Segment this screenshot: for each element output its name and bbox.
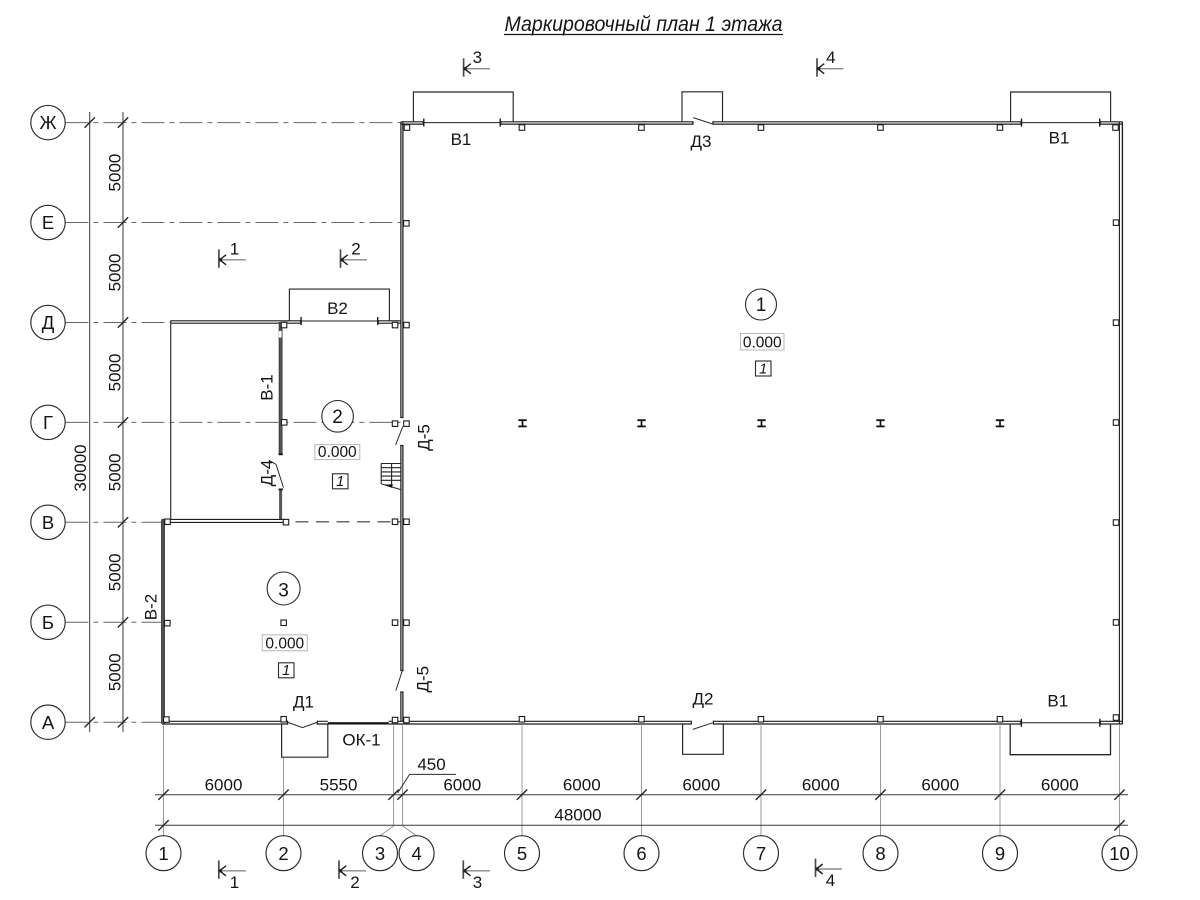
svg-text:48000: 48000 xyxy=(554,805,601,824)
svg-text:Д-5: Д-5 xyxy=(415,424,434,451)
svg-text:В-1: В-1 xyxy=(258,374,277,400)
svg-text:450: 450 xyxy=(417,755,445,774)
svg-text:5000: 5000 xyxy=(105,354,124,392)
svg-text:6000: 6000 xyxy=(921,776,959,795)
svg-text:0.000: 0.000 xyxy=(743,335,782,352)
svg-text:6000: 6000 xyxy=(205,776,243,795)
svg-text:4: 4 xyxy=(411,843,421,864)
svg-text:5000: 5000 xyxy=(105,553,124,591)
svg-text:В1: В1 xyxy=(1049,129,1070,148)
svg-text:3: 3 xyxy=(473,48,482,67)
svg-text:1: 1 xyxy=(336,474,344,490)
svg-text:В1: В1 xyxy=(1047,692,1068,711)
svg-text:В2: В2 xyxy=(327,299,348,318)
svg-text:1: 1 xyxy=(282,663,290,679)
svg-text:6000: 6000 xyxy=(802,776,840,795)
svg-text:1: 1 xyxy=(230,240,239,259)
svg-text:9: 9 xyxy=(995,843,1005,864)
svg-text:5000: 5000 xyxy=(105,254,124,292)
svg-text:6000: 6000 xyxy=(1041,776,1079,795)
svg-text:Д-5: Д-5 xyxy=(414,666,433,693)
svg-text:6000: 6000 xyxy=(682,776,720,795)
svg-text:5000: 5000 xyxy=(105,453,124,491)
svg-text:Д3: Д3 xyxy=(691,132,712,151)
svg-text:0.000: 0.000 xyxy=(265,635,304,652)
svg-text:2: 2 xyxy=(332,407,343,428)
svg-text:4: 4 xyxy=(826,871,835,890)
svg-text:4: 4 xyxy=(826,48,835,67)
svg-text:8: 8 xyxy=(875,843,885,864)
svg-text:5000: 5000 xyxy=(105,154,124,192)
svg-text:А: А xyxy=(42,712,55,733)
svg-text:1: 1 xyxy=(158,843,168,864)
svg-text:Маркировочный план 1 этажа: Маркировочный план 1 этажа xyxy=(505,13,783,36)
svg-text:В-2: В-2 xyxy=(142,594,161,620)
svg-text:5: 5 xyxy=(517,843,527,864)
svg-text:30000: 30000 xyxy=(71,444,90,491)
svg-text:0.000: 0.000 xyxy=(318,444,357,461)
svg-text:3: 3 xyxy=(375,843,385,864)
svg-text:1: 1 xyxy=(756,295,767,316)
svg-text:2: 2 xyxy=(278,843,288,864)
svg-text:Г: Г xyxy=(43,412,53,433)
svg-text:3: 3 xyxy=(473,873,482,892)
svg-text:2: 2 xyxy=(351,240,360,259)
svg-text:Е: Е xyxy=(42,212,54,233)
svg-text:5550: 5550 xyxy=(320,776,358,795)
svg-text:10: 10 xyxy=(1109,843,1130,864)
svg-text:3: 3 xyxy=(278,580,289,601)
svg-text:1: 1 xyxy=(759,361,767,377)
svg-text:6: 6 xyxy=(636,843,646,864)
svg-text:Ж: Ж xyxy=(39,112,56,133)
svg-text:В: В xyxy=(42,512,54,533)
svg-text:Д: Д xyxy=(42,312,55,333)
svg-text:Б: Б xyxy=(42,612,54,633)
svg-text:7: 7 xyxy=(756,843,766,864)
svg-text:1: 1 xyxy=(230,873,239,892)
svg-text:6000: 6000 xyxy=(563,776,601,795)
svg-text:2: 2 xyxy=(350,873,359,892)
svg-text:Д2: Д2 xyxy=(693,689,714,708)
svg-text:Д-4: Д-4 xyxy=(258,460,277,487)
svg-text:5000: 5000 xyxy=(105,653,124,691)
svg-text:Д1: Д1 xyxy=(293,692,314,711)
svg-text:ОК-1: ОК-1 xyxy=(342,731,380,750)
svg-text:В1: В1 xyxy=(451,130,472,149)
svg-text:6000: 6000 xyxy=(443,776,481,795)
